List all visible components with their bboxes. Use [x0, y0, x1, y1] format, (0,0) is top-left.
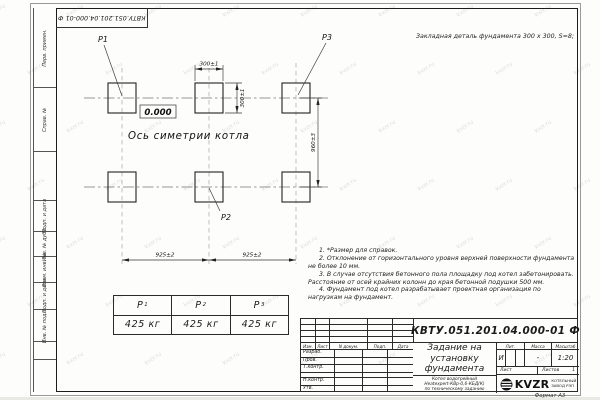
sheets-cell: Листов 1 — [538, 367, 579, 375]
loads-table: Р1 Р2 Р3 425 кг 425 кг 425 кг — [113, 295, 289, 335]
sig-row-utv: Утв. — [301, 386, 413, 393]
scale-header: Масштаб — [552, 343, 579, 350]
rev-col-data: Дата — [393, 343, 413, 349]
signature-table: Разраб. Пров. Т.контр. Н.контр. Утв. — [301, 350, 413, 392]
rev-col-izm: Изм. — [301, 343, 316, 349]
doc-number: КВТУ.051.201.04.000-01 Ф — [413, 319, 577, 343]
rev-col-list: Лист — [316, 343, 330, 349]
strip-box-perv-primen: Перв. примен. — [34, 8, 56, 88]
point-label-p2: Р2 — [221, 213, 231, 222]
sig-row-tkontr: Т.контр. — [301, 365, 413, 373]
kvzr-logo: KVZR КОТЕЛЬНЫЙ ЗАВОД РЭП — [497, 375, 579, 393]
loads-value-row: 425 кг 425 кг 425 кг — [114, 315, 288, 335]
strip-box-inv-podl: Инв. № подл. — [34, 310, 56, 342]
dim-row-spacing: 960±3 — [311, 133, 317, 152]
embedded-part-note: Закладная деталь фундамента 300 х 300, S… — [412, 33, 578, 40]
left-margin-strip: Перв. примен. Справ. № Подп. и дата Инв.… — [33, 8, 56, 392]
load-header-p3: Р3 — [230, 296, 288, 315]
strip-box-podp-data-2: Подп. и дата — [34, 283, 56, 310]
note-3: 3. В случае отсутствия бетонного пола пл… — [308, 271, 576, 287]
note-2: 2. Отклонение от горизонтального уровня … — [308, 255, 576, 271]
drawing-title: Задание на установку фундамента — [413, 343, 497, 376]
axis-caption: Ось симетрии котла — [128, 131, 250, 142]
lit-cells: И — [497, 350, 525, 367]
point-label-p3: Р3 — [322, 33, 332, 42]
sig-row-nkontr: Н.контр. — [301, 378, 413, 386]
point-label-p1: Р1 — [98, 35, 108, 44]
scale-value: 1:20 — [552, 350, 579, 367]
note-1: 1. *Размер для справок. — [308, 247, 576, 255]
product-name: Котел водогрейный Heatexpert-КВр-0,6-КБД… — [413, 376, 497, 393]
strip-box-sprav-no: Справ. № — [34, 88, 56, 152]
revision-header-row: Изм. Лист N докум. Подп. Дата — [301, 343, 413, 350]
kvzr-caption: КОТЕЛЬНЫЙ ЗАВОД РЭП — [551, 379, 576, 388]
elevation-value: 0.000 — [144, 108, 171, 118]
load-header-p2: Р2 — [171, 296, 229, 315]
kvzr-emblem-icon — [500, 378, 513, 391]
lit-header: Лит. — [497, 343, 525, 350]
leader-p1 — [104, 45, 122, 96]
dim-span-right: 925±2 — [243, 253, 262, 259]
sheets-count: 1 — [572, 368, 575, 373]
dim-pad-width: 300±1 — [200, 62, 219, 68]
sig-row-prov: Пров. — [301, 358, 413, 366]
title-block: Изм. Лист N докум. Подп. Дата Разраб. Пр… — [300, 318, 578, 392]
drawing-sheet: kvzr.rukvzr.rukvzr.rukvzr.rukvzr.rukvzr.… — [0, 0, 600, 400]
leader-p2 — [209, 188, 220, 211]
format-label: Формат А3 — [515, 393, 585, 399]
mass-value: - — [525, 350, 552, 367]
note-4: 4. Фундамент под котел разрабатывает про… — [308, 286, 576, 302]
lit-value: И — [497, 350, 506, 366]
load-value-p1: 425 кг — [114, 316, 171, 335]
strip-box-empty — [34, 342, 56, 360]
kvzr-wordmark: KVZR — [515, 378, 550, 391]
dim-span-left: 925±2 — [156, 253, 175, 259]
load-value-p3: 425 кг — [230, 316, 288, 335]
load-value-p2: 425 кг — [171, 316, 229, 335]
rev-col-dokum: N докум. — [330, 343, 368, 349]
rev-col-podp: Подп. — [368, 343, 393, 349]
sig-row-razrab: Разраб. — [301, 350, 413, 358]
technical-notes: 1. *Размер для справок. 2. Отклонение от… — [308, 247, 576, 302]
dim-pad-height: 300±1 — [240, 89, 246, 108]
mass-header: Масса — [525, 343, 552, 350]
loads-header-row: Р1 Р2 Р3 — [114, 296, 288, 315]
load-header-p1: Р1 — [114, 296, 171, 315]
leader-p3 — [298, 43, 326, 95]
revision-grid — [301, 319, 413, 343]
sheet-cell: Лист — [497, 367, 538, 375]
